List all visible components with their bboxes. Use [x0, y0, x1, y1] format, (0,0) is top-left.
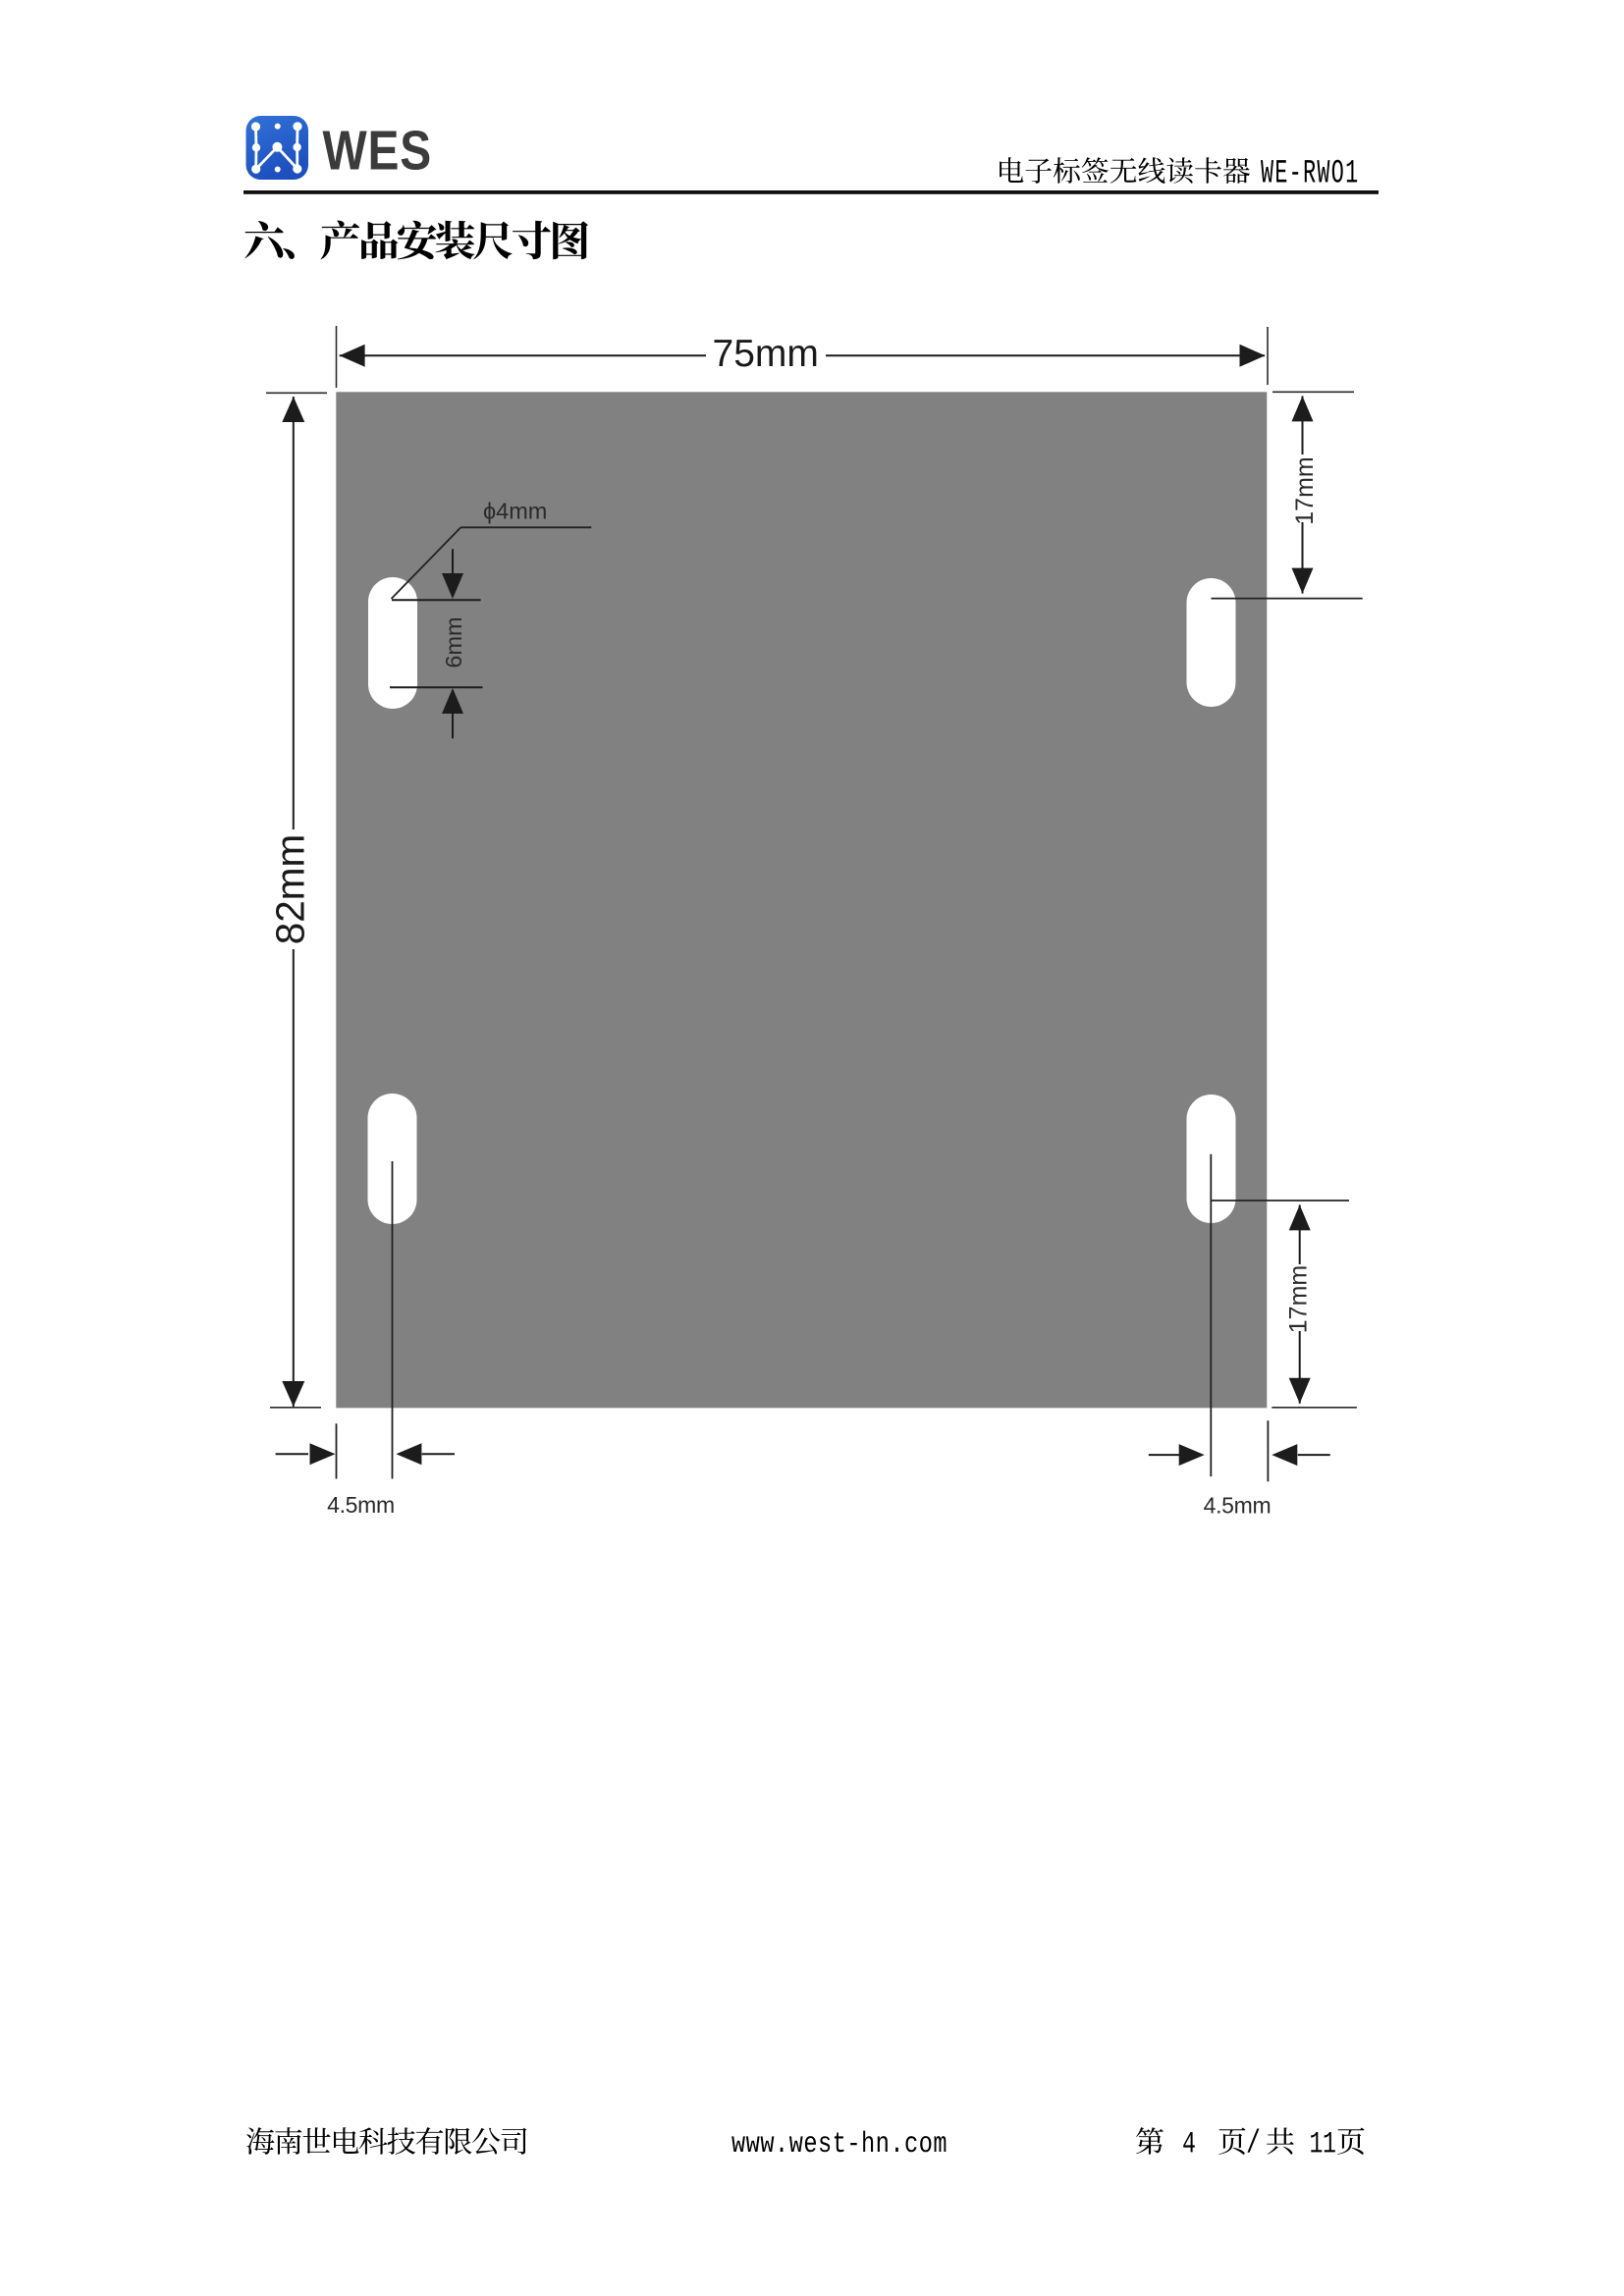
svg-text:6mm: 6mm	[441, 616, 466, 667]
svg-text:17mm: 17mm	[1291, 456, 1319, 524]
svg-text:4.5mm: 4.5mm	[327, 1492, 395, 1518]
svg-text:82mm: 82mm	[268, 834, 313, 945]
svg-text:75mm: 75mm	[713, 333, 819, 375]
svg-text:ϕ4mm: ϕ4mm	[483, 499, 547, 524]
svg-text:4.5mm: 4.5mm	[1204, 1493, 1272, 1519]
svg-text:WES: WES	[323, 120, 433, 183]
svg-text:17mm: 17mm	[1285, 1265, 1313, 1333]
